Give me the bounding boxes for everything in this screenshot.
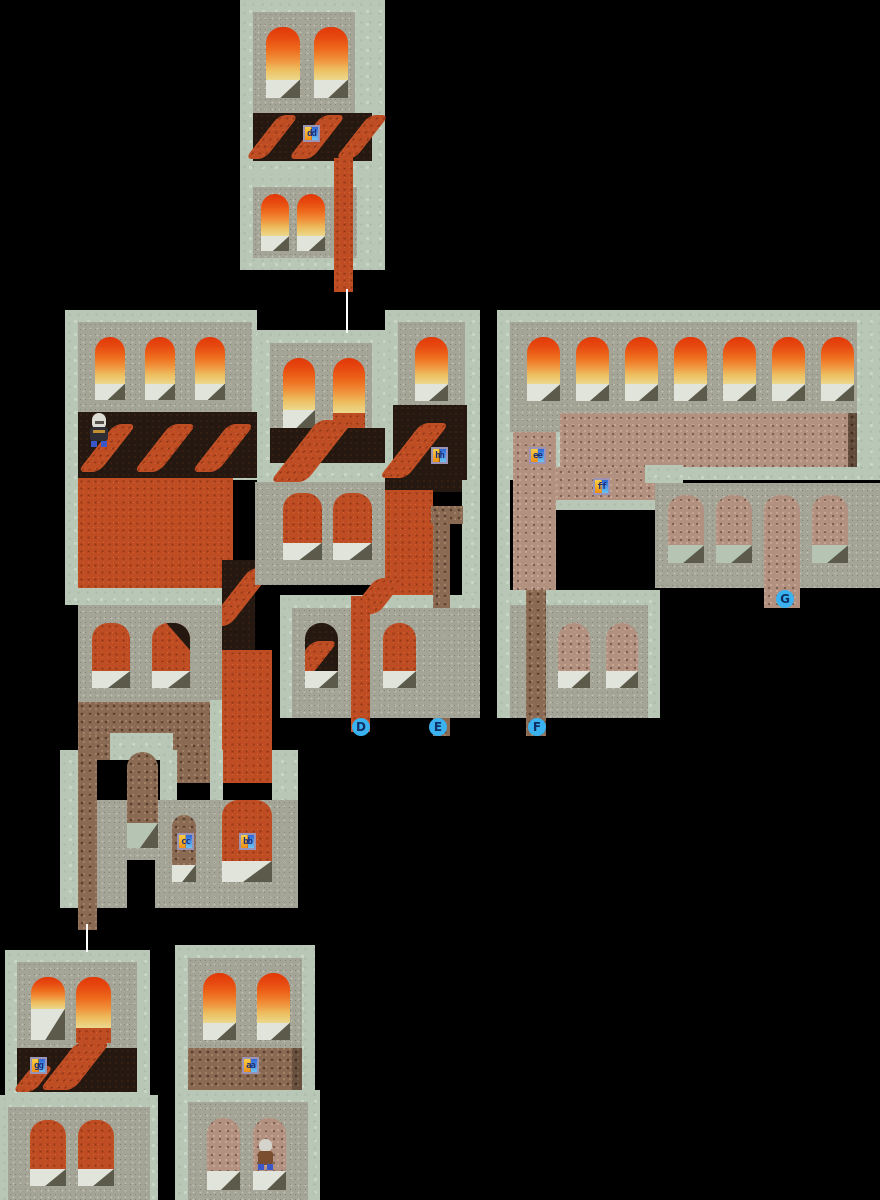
window-sill	[31, 1009, 65, 1041]
window-sill	[576, 384, 609, 401]
window-fold-shadow	[786, 384, 805, 401]
path-to-gg-room	[78, 735, 97, 930]
window-sill	[95, 384, 125, 400]
lava-fall-path	[334, 158, 353, 292]
window-sill	[283, 543, 322, 560]
window-lava	[78, 1120, 114, 1186]
lava-lake	[78, 478, 233, 592]
window-fold-shadow	[45, 1169, 66, 1186]
window-sill	[625, 384, 658, 401]
door-tag-dd[interactable]: dd	[303, 125, 320, 142]
window-fire-glow	[31, 977, 65, 1009]
sage-border	[65, 480, 78, 605]
window-fire-glow	[195, 337, 225, 384]
window-sill	[305, 671, 338, 688]
stone-wall	[188, 1102, 308, 1200]
window-fire	[527, 337, 560, 401]
window-fire-glow	[674, 337, 707, 384]
window-fire-glow	[821, 337, 854, 384]
doorway-brick	[716, 495, 752, 563]
villager-npc	[256, 1139, 275, 1170]
window-fire	[772, 337, 805, 401]
window-sill	[266, 80, 300, 98]
window-fold-shadow	[271, 1023, 290, 1040]
window-sill	[261, 236, 289, 251]
exit-pin-D[interactable]: D	[352, 718, 370, 736]
window-fire-lava-spill	[76, 977, 111, 1043]
doorway-brick	[606, 623, 638, 688]
window-fold-shadow	[541, 384, 560, 401]
window-lava	[333, 493, 372, 560]
window-fire-glow	[415, 337, 448, 384]
window-sill	[203, 1023, 236, 1040]
window-sill	[333, 543, 372, 560]
window-fold-shadow	[827, 545, 848, 563]
window-fold-shadow	[280, 80, 300, 98]
doorway-sill	[172, 865, 196, 882]
window-dark	[305, 623, 338, 688]
window-fire	[145, 337, 175, 400]
stone-wall	[510, 413, 560, 432]
window-sill	[78, 1169, 114, 1186]
exit-pin-E[interactable]: E	[429, 718, 447, 736]
sage-border	[462, 480, 480, 608]
window-fold-shadow	[319, 671, 338, 688]
window-fold-shadow	[221, 1171, 240, 1190]
window-fire-glow	[95, 337, 125, 384]
window-fire-glow	[527, 337, 560, 384]
window-fire	[415, 337, 448, 401]
window-fire	[283, 358, 315, 428]
door-tag-bb[interactable]: bb	[239, 833, 256, 850]
skeleton-boot	[91, 441, 97, 447]
window-fold-shadow	[217, 1023, 236, 1040]
window-fold-shadow	[267, 1171, 286, 1190]
brick-floor	[177, 750, 210, 783]
window-fire	[821, 337, 854, 401]
window-fire-glow	[772, 337, 805, 384]
window-lava	[283, 493, 322, 560]
brick-walkway	[560, 413, 857, 467]
door-tag-ff[interactable]: ff	[593, 478, 610, 495]
exit-pin-F[interactable]: F	[528, 718, 546, 736]
villager-body	[258, 1151, 273, 1165]
doorway-brick	[668, 495, 704, 563]
window-fire-glow	[257, 973, 290, 1023]
doorway-brick	[558, 623, 590, 688]
door-tag-hh[interactable]: hh	[431, 447, 448, 464]
window-fire	[261, 194, 289, 251]
brick-edge	[848, 413, 857, 467]
window-fold-shadow	[243, 861, 272, 882]
door-tag-aa[interactable]: aa	[242, 1057, 259, 1074]
map-connector-line	[86, 924, 88, 952]
window-fire	[625, 337, 658, 401]
window-fire-glow	[333, 358, 365, 413]
villager-boot	[258, 1164, 264, 1170]
sage-border	[210, 750, 223, 802]
window-fire-glow	[203, 973, 236, 1023]
window-fold-shadow	[688, 384, 707, 401]
window-fold-shadow	[590, 384, 609, 401]
window-fire	[576, 337, 609, 401]
window-fold-shadow	[835, 384, 854, 401]
window-fire	[195, 337, 225, 400]
window-sill	[297, 236, 325, 251]
window-fold-shadow	[273, 236, 289, 251]
doorway-brick	[127, 752, 158, 848]
window-sill	[92, 671, 130, 688]
window-fire-glow	[297, 194, 325, 236]
doorway-sill	[812, 545, 848, 563]
window-sill	[674, 384, 707, 401]
window-fire-glow	[266, 27, 300, 80]
window-fold-shadow	[571, 671, 590, 688]
path-D	[351, 596, 370, 732]
window-fold-shadow	[158, 384, 175, 400]
window-fold-shadow	[299, 543, 322, 560]
skeleton-boot	[101, 441, 107, 447]
window-fold-shadow	[639, 384, 658, 401]
window-fold-shadow	[309, 236, 325, 251]
path-F	[526, 590, 546, 736]
window-fire	[674, 337, 707, 401]
window-fire	[257, 973, 290, 1040]
window-fold-shadow	[182, 865, 196, 882]
doorway-sill	[558, 671, 590, 688]
window-lava	[92, 623, 130, 688]
window-fire-lava-spill	[333, 358, 365, 428]
window-sill	[30, 1169, 66, 1186]
lava-spill	[76, 1028, 111, 1043]
sage-border	[160, 750, 177, 802]
window-fire-glow	[261, 194, 289, 236]
window-sill	[527, 384, 560, 401]
window-lava	[383, 623, 416, 688]
door-tag-cc[interactable]: cc	[177, 833, 194, 850]
dark-doorway	[127, 860, 155, 908]
window-sill	[195, 384, 225, 400]
lava-fall-path	[222, 650, 272, 783]
skeleton-face	[95, 421, 104, 424]
doorway-sill	[253, 1171, 286, 1190]
window-fold-shadow	[328, 80, 348, 98]
sage-border	[280, 595, 292, 718]
window-lava	[152, 623, 190, 688]
window-sill	[415, 384, 448, 401]
doorway-sill	[716, 545, 752, 563]
window-sill	[257, 1023, 290, 1040]
brick-edge	[292, 1048, 302, 1090]
sage-border	[60, 750, 78, 908]
window-fold-shadow	[45, 1009, 65, 1041]
window-sill	[314, 80, 348, 98]
window-fire-glow	[76, 977, 111, 1028]
window-fire-glow	[145, 337, 175, 384]
window-fire	[297, 194, 325, 251]
window-fire	[31, 977, 65, 1040]
doorway-sill	[606, 671, 638, 688]
doorway-sill	[207, 1171, 240, 1190]
skeleton-npc	[88, 413, 110, 447]
skeleton-trim	[93, 430, 105, 433]
window-lava	[30, 1120, 66, 1186]
window-fold-shadow	[619, 671, 638, 688]
map-connector-line	[346, 289, 348, 333]
window-fold-shadow	[731, 545, 752, 563]
sage-inset	[645, 465, 683, 483]
window-fold-shadow	[737, 384, 756, 401]
window-fire	[266, 27, 300, 98]
window-fire	[203, 973, 236, 1040]
window-fold-shadow	[429, 384, 448, 401]
sage-border	[272, 750, 298, 802]
window-sill	[772, 384, 805, 401]
doorway-sill	[222, 861, 272, 882]
window-fire-glow	[283, 358, 315, 410]
doorway-brick	[207, 1118, 240, 1190]
window-sill	[821, 384, 854, 401]
window-sill	[283, 410, 315, 428]
window-fold-shadow	[208, 384, 225, 400]
map-canvas: dd hh ee ff cc bb gg aa D E F G	[0, 0, 880, 1200]
window-sill	[145, 384, 175, 400]
sage-band	[450, 595, 480, 608]
window-fold-shadow	[168, 671, 190, 688]
window-fold-shadow	[349, 543, 372, 560]
window-sill	[152, 671, 190, 688]
exit-pin-G[interactable]: G	[776, 590, 794, 608]
window-fold-shadow	[397, 671, 416, 688]
window-fire	[723, 337, 756, 401]
window-fold-shadow	[108, 384, 125, 400]
door-tag-ee[interactable]: ee	[529, 447, 546, 464]
window-fold-shadow	[683, 545, 704, 563]
window-fire	[314, 27, 348, 98]
window-fire-glow	[576, 337, 609, 384]
door-tag-gg[interactable]: gg	[30, 1057, 47, 1074]
window-fold-shadow	[296, 410, 315, 428]
window-fold-shadow	[108, 671, 130, 688]
window-fire-glow	[723, 337, 756, 384]
window-fire-glow	[625, 337, 658, 384]
sage-border	[497, 480, 510, 590]
window-sill	[723, 384, 756, 401]
doorway-brick	[812, 495, 848, 563]
doorway-sill	[127, 823, 158, 848]
window-fold-shadow	[93, 1169, 114, 1186]
window-fire-glow	[314, 27, 348, 80]
villager-boot	[267, 1164, 273, 1170]
window-fold-shadow	[140, 823, 158, 848]
doorway-sill	[668, 545, 704, 563]
window-fire	[95, 337, 125, 400]
sage-band	[65, 588, 222, 605]
window-sill	[383, 671, 416, 688]
